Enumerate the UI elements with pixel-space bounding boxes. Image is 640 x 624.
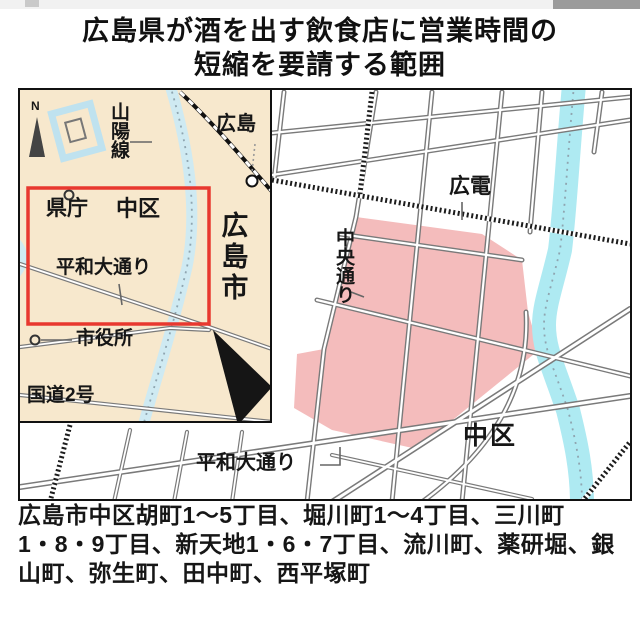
caption-line-2: 1・8・9丁目、新天地1・6・7丁目、流川町、薬研堀、銀 [18,530,634,559]
naka-ward-label: 中区 [463,423,517,449]
hiroshima-city-label: 広島市 [218,211,246,304]
inset-river-branch [20,240,24,276]
title-line-1: 広島県が酒を出す飲食店に営業時間の [0,14,640,48]
peace-blvd-label: 平和大通り [196,453,296,474]
sanyo-line-label: 山陽線 [108,102,128,159]
hiroshima-station-label: 広島 [216,114,256,135]
page-title: 広島県が酒を出す飲食店に営業時間の 短縮を要請する範囲 [0,14,640,82]
title-line-2: 短縮を要請する範囲 [0,48,640,82]
inset-peace-blvd-label: 平和大通り [56,258,151,278]
prefectural-office-label: 県庁 [46,198,88,220]
north-label: N [31,100,40,113]
caption-line-3: 山町、弥生町、田中町、西平塚町 [18,559,634,588]
area-list-caption: 広島市中区胡町1〜5丁目、堀川町1〜4丁目、三川町 1・8・9丁目、新天地1・6… [18,501,634,588]
top-left-gray-mark [25,0,39,7]
city-hall-label: 市役所 [76,329,133,349]
hiroshima-station-marker [247,176,258,187]
inset-naka-ward-label: 中区 [116,197,160,220]
river [544,90,582,499]
city-hall-marker [31,336,40,345]
north-arrow-icon [29,117,45,157]
caption-line-1: 広島市中区胡町1〜5丁目、堀川町1〜4丁目、三川町 [18,501,634,530]
inset-overview-map: N 山陽線 広島 県庁 中区 平和大通り 市役所 国道2号 広島市 [18,88,272,423]
peace-blvd-inset-leader [119,284,122,305]
top-edge-strip [0,0,640,9]
tram-line-bottom-left [50,425,70,499]
route2-label: 国道2号 [27,386,95,406]
hiroden-label: 広電 [449,176,491,198]
chuo-dori-label: 中央通り [333,228,353,304]
infographic-root: { "title": { "line1": "広島県が酒を出す飲食店に営業時間の… [0,0,640,624]
hiroshima-castle [51,104,102,159]
top-right-gray-mark [553,0,640,9]
map-frame: 広電 中央通り 平和大通り 中区 [18,88,632,501]
